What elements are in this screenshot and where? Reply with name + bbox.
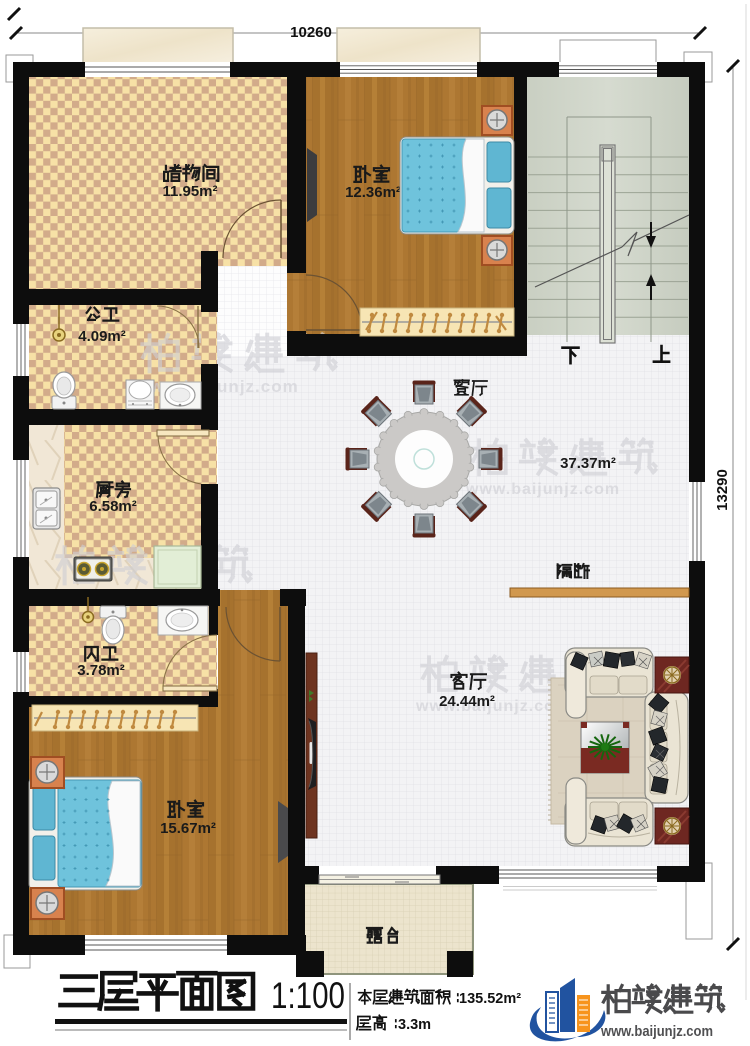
svg-text:12.36m²: 12.36m²	[345, 184, 401, 201]
svg-text:11.95m²: 11.95m²	[162, 183, 217, 200]
svg-text:15.67m²: 15.67m²	[160, 820, 216, 837]
svg-text:6.58m²: 6.58m²	[89, 498, 137, 515]
svg-text:13290: 13290	[714, 469, 731, 511]
svg-text:www.baijunjz.com: www.baijunjz.com	[465, 481, 620, 498]
svg-text:4.09m²: 4.09m²	[78, 328, 126, 345]
svg-text:24.44m²: 24.44m²	[439, 693, 495, 710]
svg-text:3.78m²: 3.78m²	[77, 662, 125, 679]
svg-text:1:100: 1:100	[271, 975, 345, 1016]
svg-text:37.37m²: 37.37m²	[560, 455, 616, 472]
svg-text:10260: 10260	[290, 24, 332, 41]
svg-text:135.52m²: 135.52m²	[459, 991, 521, 1007]
svg-text:www.baijunjz.com: www.baijunjz.com	[600, 1023, 713, 1040]
svg-text:3.3m: 3.3m	[398, 1017, 431, 1033]
